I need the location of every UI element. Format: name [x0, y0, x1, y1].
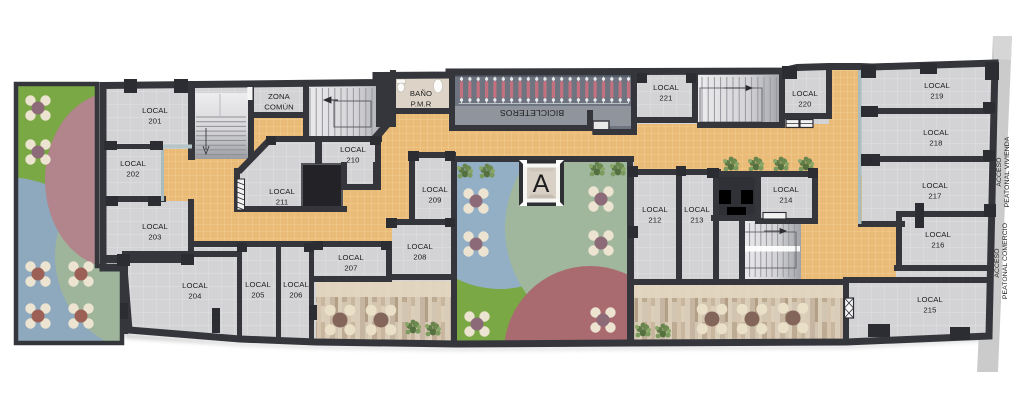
svg-text:220: 220 — [798, 100, 811, 109]
svg-text:214: 214 — [779, 196, 793, 205]
svg-text:205: 205 — [251, 291, 264, 300]
svg-text:LOCAL: LOCAL — [923, 128, 949, 137]
svg-text:PEATONAL COMERCIO: PEATONAL COMERCIO — [1002, 223, 1009, 299]
svg-text:207: 207 — [344, 264, 357, 273]
svg-text:218: 218 — [929, 139, 942, 148]
svg-text:213: 213 — [690, 216, 703, 225]
svg-text:A: A — [533, 170, 550, 198]
svg-text:LOCAL: LOCAL — [924, 81, 950, 90]
svg-text:211: 211 — [276, 198, 289, 207]
svg-text:BAÑO: BAÑO — [410, 89, 432, 98]
svg-text:210: 210 — [346, 156, 359, 165]
svg-text:LOCAL: LOCAL — [917, 295, 943, 304]
svg-text:LOCAL: LOCAL — [653, 83, 679, 92]
svg-text:LOCAL: LOCAL — [120, 159, 146, 168]
svg-text:219: 219 — [930, 92, 943, 101]
svg-text:ACCESO: ACCESO — [994, 248, 1001, 277]
svg-text:215: 215 — [923, 306, 936, 315]
svg-text:LOCAL: LOCAL — [340, 145, 366, 154]
svg-text:208: 208 — [413, 253, 426, 262]
svg-text:LOCAL: LOCAL — [773, 185, 799, 194]
svg-text:ZONA: ZONA — [268, 92, 291, 101]
svg-text:LOCAL: LOCAL — [142, 106, 168, 115]
svg-text:LOCAL: LOCAL — [925, 230, 951, 239]
svg-text:204: 204 — [188, 292, 202, 301]
svg-text:216: 216 — [931, 241, 944, 250]
svg-text:LOCAL: LOCAL — [269, 187, 295, 196]
svg-text:LOCAL: LOCAL — [182, 281, 208, 290]
svg-text:LOCAL: LOCAL — [142, 222, 168, 231]
svg-text:LOCAL: LOCAL — [792, 89, 818, 98]
svg-text:LOCAL: LOCAL — [642, 205, 668, 214]
svg-text:P.M.R: P.M.R — [411, 100, 432, 109]
svg-text:PEATONAL VIVIENDA: PEATONAL VIVIENDA — [1004, 136, 1011, 207]
svg-text:LOCAL: LOCAL — [338, 253, 364, 262]
svg-text:BICICLETEROS: BICICLETEROS — [500, 108, 564, 118]
svg-text:209: 209 — [428, 196, 441, 205]
svg-text:203: 203 — [148, 233, 161, 242]
svg-text:COMÚN: COMÚN — [264, 103, 294, 112]
svg-text:LOCAL: LOCAL — [922, 181, 948, 190]
svg-text:221: 221 — [659, 94, 672, 103]
svg-text:LOCAL: LOCAL — [245, 280, 271, 289]
svg-text:206: 206 — [289, 291, 302, 300]
svg-text:LOCAL: LOCAL — [407, 242, 433, 251]
svg-text:LOCAL: LOCAL — [422, 185, 448, 194]
svg-text:201: 201 — [148, 117, 161, 126]
svg-text:ACCESO: ACCESO — [996, 157, 1003, 186]
svg-text:202: 202 — [126, 170, 139, 179]
svg-text:LOCAL: LOCAL — [283, 280, 309, 289]
svg-text:LOCAL: LOCAL — [684, 205, 710, 214]
svg-text:212: 212 — [648, 216, 661, 225]
svg-text:217: 217 — [928, 192, 941, 201]
